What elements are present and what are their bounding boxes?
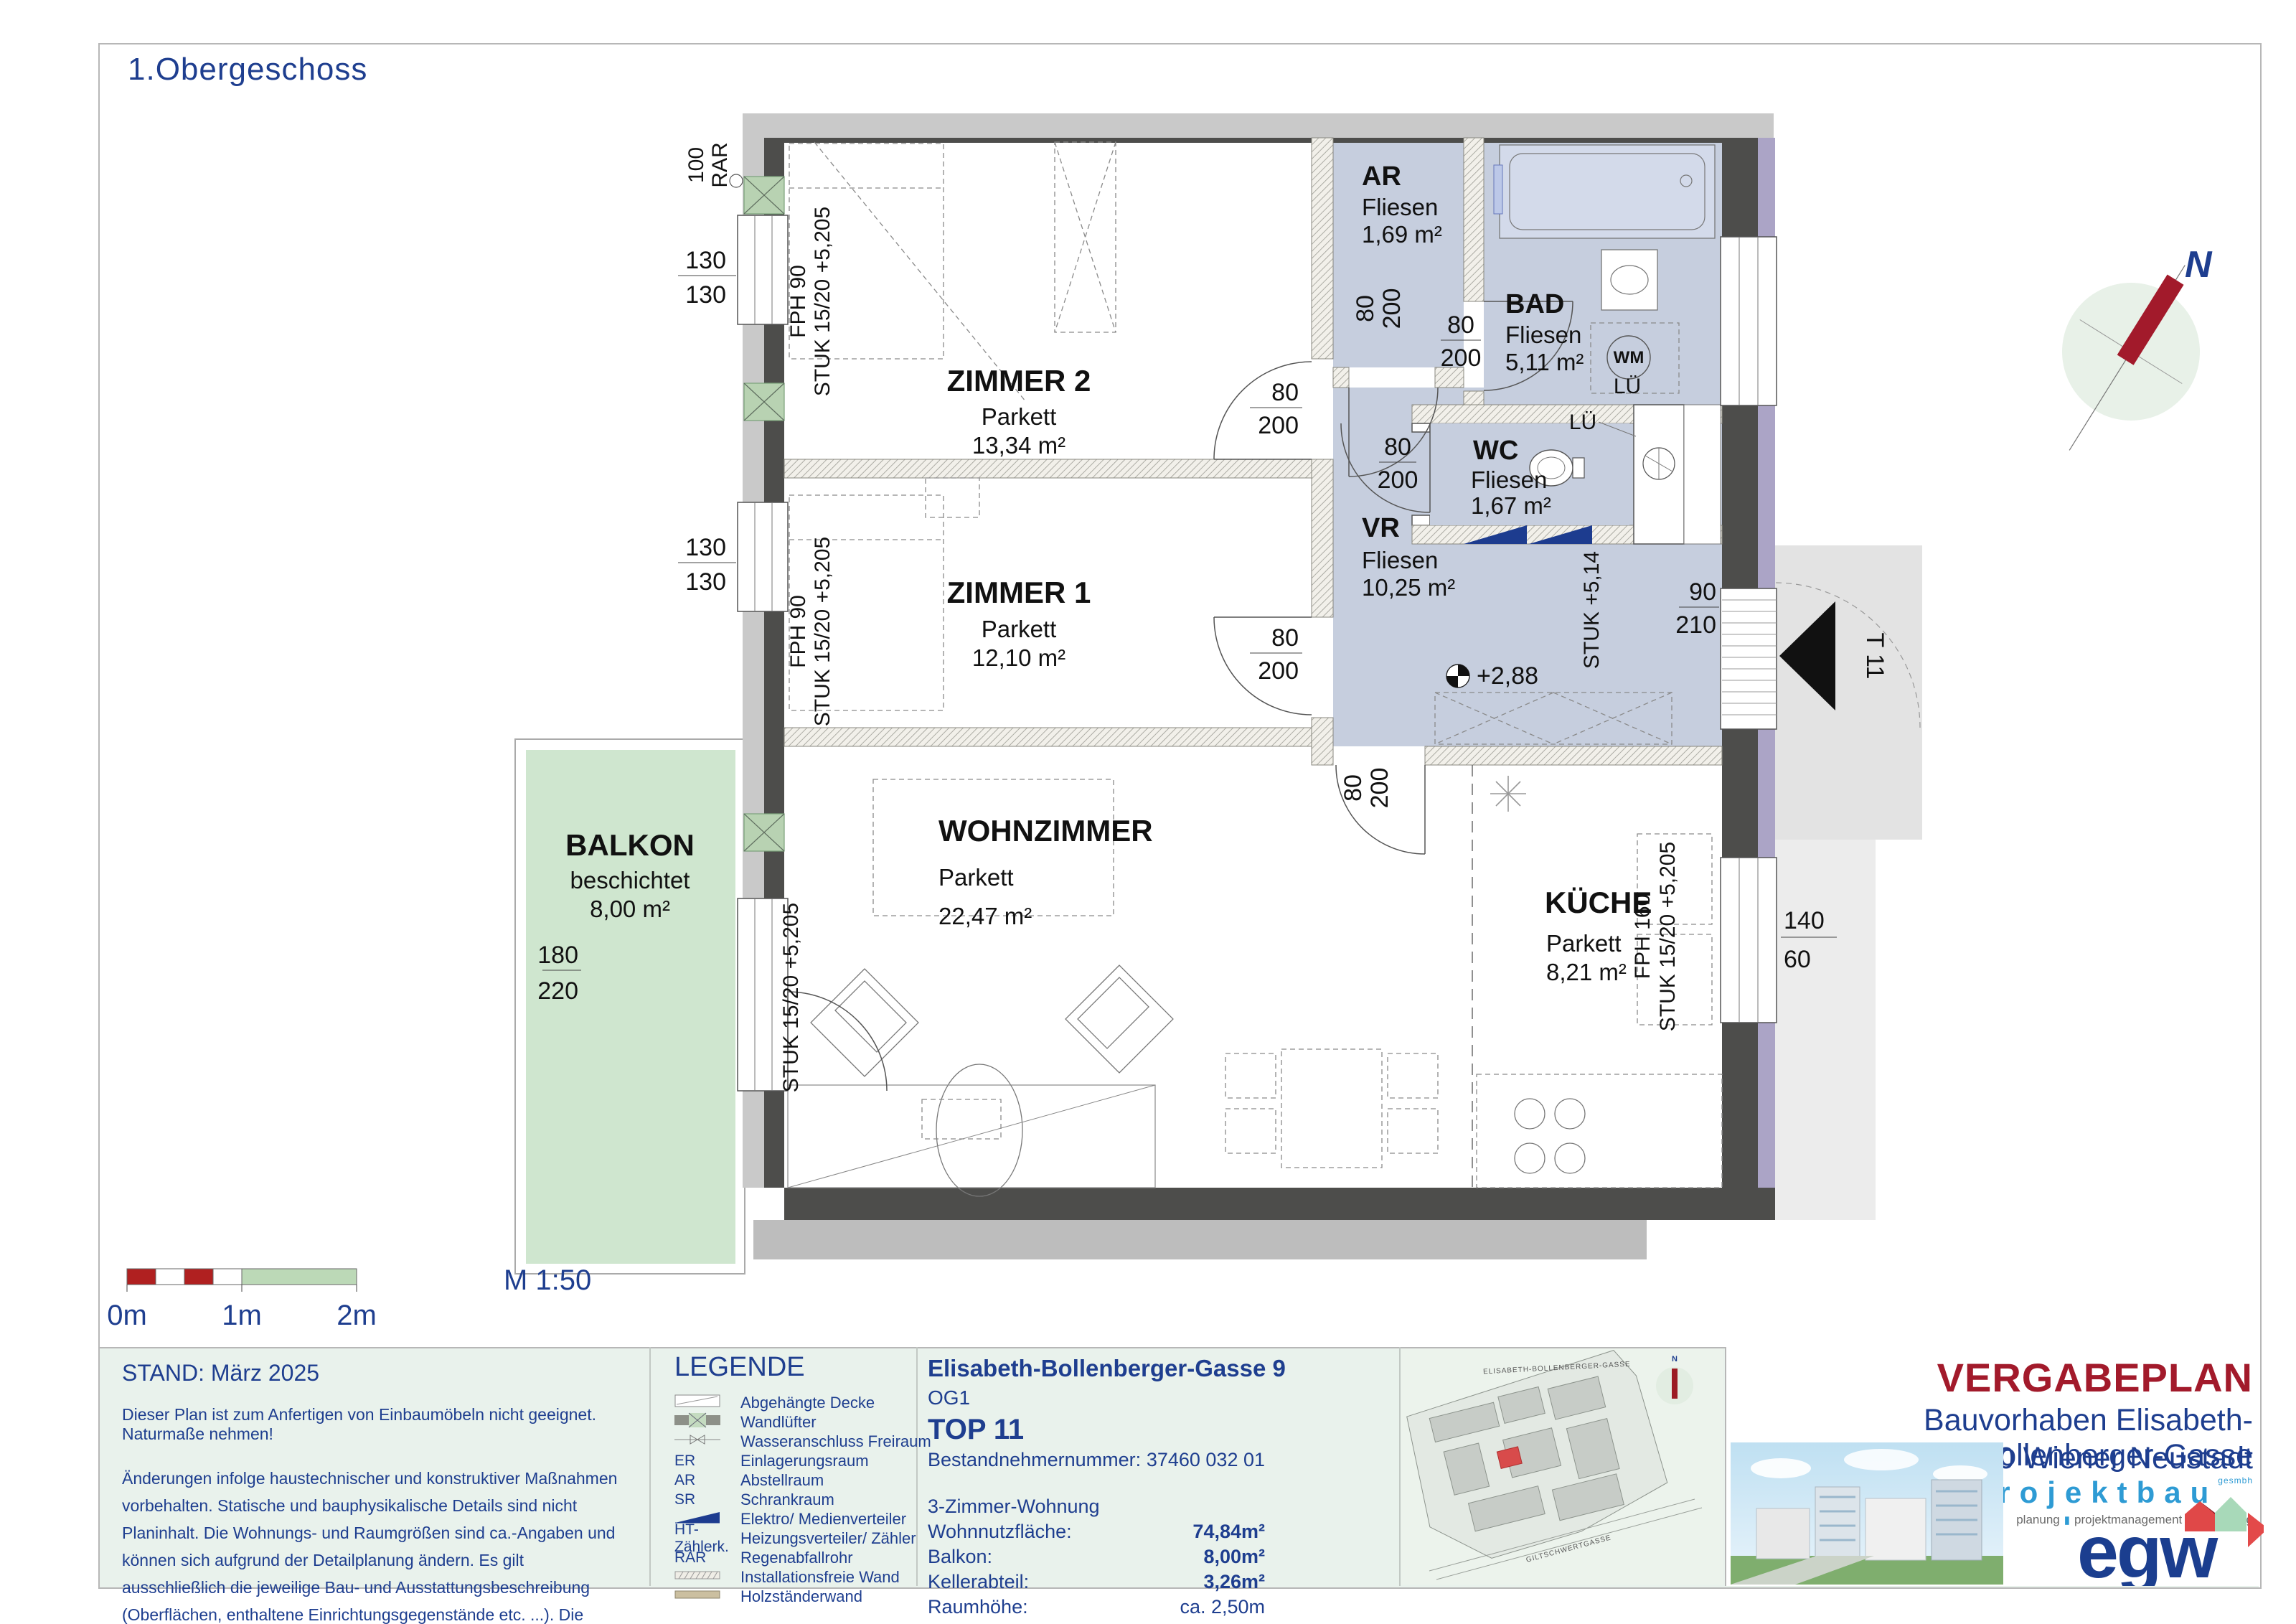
svg-text:80: 80 [1340, 774, 1367, 802]
svg-text:Fliesen: Fliesen [1362, 194, 1438, 220]
svg-text:beschichtet: beschichtet [570, 867, 690, 893]
room-zimmer1: ZIMMER 1 [947, 576, 1091, 609]
zimmer1-window [738, 502, 788, 611]
svg-text:80: 80 [1384, 433, 1411, 461]
page-title: 1.Obergeschoss [128, 52, 367, 88]
svg-text:+2,88: +2,88 [1477, 662, 1538, 690]
bathtub [1500, 145, 1715, 238]
svg-text:12,10 m²: 12,10 m² [972, 644, 1065, 671]
tenant-number-row: Bestandnehmernummer: 37460 032 01 [928, 1449, 1265, 1471]
legend-row: Installationsfreie Wand [674, 1567, 911, 1587]
svg-text:FPH 90: FPH 90 [786, 595, 810, 668]
legend-row: Abgehängte Decke [674, 1393, 911, 1412]
svg-text:STUK 15/20 +5,205: STUK 15/20 +5,205 [779, 903, 803, 1092]
svg-text:Fliesen: Fliesen [1505, 321, 1581, 348]
svg-text:80: 80 [1447, 311, 1474, 339]
svg-text:80: 80 [1271, 624, 1299, 652]
note-disclaimer: Änderungen infolge haustechnischer und k… [122, 1465, 631, 1624]
floor-plan: 130 130 130 130 80 200 80 200 80 200 80 … [502, 100, 1937, 1299]
kueche-window [1721, 858, 1777, 1023]
info-row: Kellerabteil: 3,26m² [928, 1571, 1265, 1593]
svg-text:N: N [1672, 1355, 1678, 1363]
legend-row: ER Einlagerungsraum [674, 1451, 911, 1470]
ceiling-symbol [674, 1393, 740, 1413]
unit-address: Elisabeth-Bollenberger-Gasse 9 [928, 1355, 1387, 1382]
svg-text:5,11 m²: 5,11 m² [1505, 349, 1584, 375]
render-image [1731, 1442, 2003, 1585]
room-kueche: KÜCHE [1545, 886, 1652, 919]
legend-row: SR Schrankraum [674, 1490, 911, 1509]
svg-text:130: 130 [685, 534, 726, 561]
scale-label: M 1:50 [504, 1264, 591, 1297]
balcony-area [515, 739, 745, 1274]
svg-text:140: 140 [1784, 907, 1825, 934]
divider [649, 1347, 651, 1586]
bad-window [1721, 237, 1777, 405]
svg-text:10,25 m²: 10,25 m² [1362, 574, 1455, 601]
info-row: Balkon: 8,00m² [928, 1546, 1265, 1568]
wall-vent-symbol [674, 1412, 740, 1432]
legend-row: RAR Regenabfallrohr [674, 1548, 911, 1567]
info-row: Raumhöhe: ca. 2,50m [928, 1596, 1265, 1618]
legend-row: AR Abstellraum [674, 1470, 911, 1490]
legend-panel: LEGENDE Abgehängte Decke Wandlüfter Wass… [674, 1352, 911, 1606]
svg-text:STUK +5,14: STUK +5,14 [1580, 551, 1604, 669]
svg-text:200: 200 [1366, 768, 1393, 809]
svg-text:220: 220 [537, 977, 578, 1005]
svg-text:210: 210 [1675, 611, 1716, 639]
svg-text:8,21 m²: 8,21 m² [1546, 959, 1627, 985]
svg-text:Parkett: Parkett [1546, 930, 1622, 957]
svg-text:Parkett: Parkett [982, 616, 1057, 642]
egw-wordmark: egw [2077, 1511, 2219, 1586]
legend-row: Holzständerwand [674, 1587, 911, 1606]
svg-text:WM: WM [1614, 348, 1645, 367]
svg-text:200: 200 [1441, 344, 1482, 372]
room-wc: WC [1473, 436, 1518, 466]
legend-row: HT-Zählerk. Heizungsverteiler/ Zähler [674, 1529, 911, 1548]
svg-text:130: 130 [685, 281, 726, 309]
scale-bar: 0m 1m 2m [108, 1256, 552, 1335]
dim: 130 [685, 247, 726, 274]
level-point [1446, 665, 1469, 687]
svg-text:0m: 0m [108, 1300, 147, 1331]
svg-text:LÜ: LÜ [1614, 375, 1641, 398]
svg-text:Parkett: Parkett [982, 403, 1057, 430]
svg-text:Fliesen: Fliesen [1362, 547, 1438, 573]
svg-text:2m: 2m [337, 1300, 377, 1331]
svg-text:200: 200 [1258, 412, 1299, 439]
svg-text:80: 80 [1352, 295, 1379, 322]
plan-date: STAND: März 2025 [122, 1360, 631, 1386]
svg-text:200: 200 [1258, 657, 1299, 685]
svg-text:130: 130 [685, 568, 726, 596]
svg-text:100: 100 [684, 147, 708, 183]
water-connection-symbol [674, 1432, 740, 1452]
room-balkon: BALKON [565, 828, 695, 862]
unit-floor: OG1 [928, 1386, 1387, 1409]
svg-text:RAR: RAR [708, 142, 732, 187]
svg-text:T 11: T 11 [1861, 633, 1888, 680]
svg-text:1m: 1m [222, 1300, 262, 1331]
room-vr: VR [1362, 513, 1400, 543]
info-row: Wohnnutzfläche: 74,84m² [928, 1521, 1265, 1543]
svg-text:1,69 m²: 1,69 m² [1362, 221, 1442, 248]
legend-title: LEGENDE [674, 1352, 911, 1383]
room-ar: AR [1362, 161, 1401, 192]
floorplan-page: 1.Obergeschoss [0, 0, 2296, 1624]
wood-stud-wall-symbol [674, 1587, 740, 1607]
room-zimmer2: ZIMMER 2 [947, 364, 1091, 398]
svg-text:1,67 m²: 1,67 m² [1471, 492, 1551, 519]
svg-text:FPH 90: FPH 90 [786, 265, 810, 338]
installation-free-wall-symbol [674, 1567, 740, 1587]
svg-text:Fliesen: Fliesen [1471, 466, 1547, 493]
svg-text:13,34 m²: 13,34 m² [972, 432, 1065, 459]
legend-row: Wandlüfter [674, 1412, 911, 1432]
notes-panel: STAND: März 2025 Dieser Plan ist zum Anf… [122, 1360, 631, 1624]
svg-text:Parkett: Parkett [938, 864, 1014, 891]
svg-text:60: 60 [1784, 946, 1811, 973]
svg-text:180: 180 [537, 942, 578, 969]
apartment-type: 3-Zimmer-Wohnung [928, 1496, 1387, 1518]
note-furniture: Dieser Plan ist zum Anfertigen von Einba… [122, 1405, 631, 1444]
unit-info-panel: Elisabeth-Bollenberger-Gasse 9 OG1 TOP 1… [928, 1355, 1387, 1618]
tenant-number: 37460 032 01 [1147, 1449, 1265, 1471]
svg-text:200: 200 [1378, 288, 1406, 329]
svg-text:22,47 m²: 22,47 m² [938, 903, 1032, 929]
divider [916, 1347, 918, 1586]
service-separator: ▮ [2060, 1514, 2074, 1526]
entry-opening [1721, 588, 1777, 729]
washbasin [1601, 250, 1657, 310]
room-wohnzimmer: WOHNZIMMER [938, 814, 1153, 848]
svg-text:90: 90 [1689, 578, 1716, 606]
svg-text:STUK 15/20 +5,205: STUK 15/20 +5,205 [1656, 842, 1680, 1031]
svg-text:STUK 15/20 +5,205: STUK 15/20 +5,205 [811, 207, 834, 396]
compass: N [2052, 230, 2239, 488]
legend-row: Wasseranschluss Freiraum [674, 1432, 911, 1451]
unit-top-number: TOP 11 [928, 1414, 1387, 1446]
svg-text:200: 200 [1378, 466, 1418, 494]
plan-type-heading: VERGABEPLAN [1744, 1354, 2253, 1401]
svg-text:8,00 m²: 8,00 m² [590, 896, 670, 922]
egw-logo: egw [2077, 1487, 2264, 1586]
svg-text:LÜ: LÜ [1569, 410, 1596, 434]
zimmer2-window [738, 215, 788, 324]
compass-north-label: N [2185, 244, 2213, 286]
room-bad: BAD [1505, 289, 1564, 319]
site-map: ELISABETH-BOLLENBERGER-GASSE GILTSCHWERT… [1401, 1348, 1723, 1585]
svg-text:STUK 15/20 +5,205: STUK 15/20 +5,205 [811, 537, 834, 726]
svg-text:80: 80 [1271, 379, 1299, 406]
